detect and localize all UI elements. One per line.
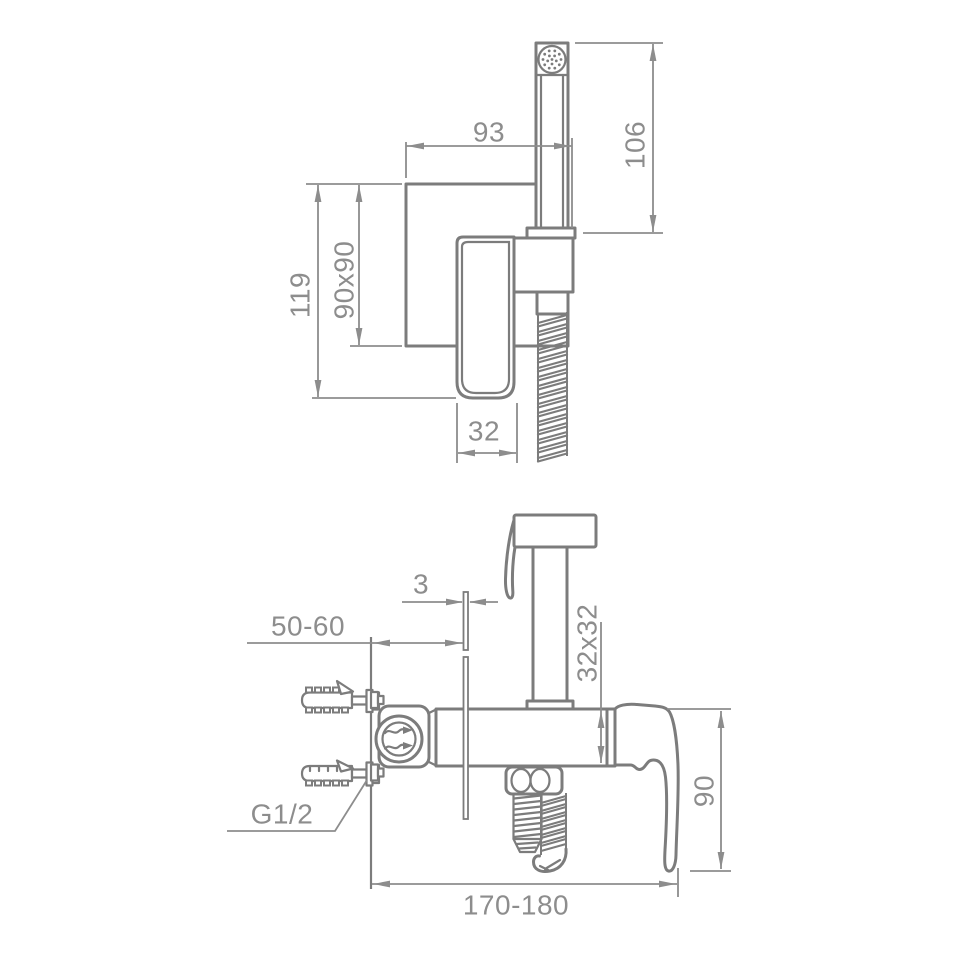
holder-flange [527,228,575,238]
dim-label-170-180: 170-180 [463,890,569,921]
handset-shaft-side [533,547,567,701]
handset-holder-block [514,238,573,292]
label-g12-thread: G1/2 [251,799,314,830]
lever-handle [615,704,678,871]
hose-sleeve [537,292,568,314]
dim-170-180: 170-180 [372,868,678,921]
dim-label-3: 3 [413,569,429,600]
dim-label-32: 32 [468,416,500,447]
dim-label-119: 119 [285,272,316,318]
dim-label-90: 90 [689,775,720,807]
spray-head-side [514,515,596,547]
escutcheon-plate [464,592,469,819]
dim-label-106: 106 [620,121,651,169]
dim-label-32x32: 32x32 [572,604,603,683]
technical-drawing-page: 93 106 119 [0,0,970,970]
dim-106: 106 [575,43,663,233]
shower-hose-side [534,793,567,872]
dim-label-90x90: 90x90 [329,241,360,320]
hose-nipple [514,795,542,852]
mixer-body [457,237,514,398]
side-view: 3 50-60 32x32 [227,515,731,921]
annotation-g12: G1/2 [227,780,367,831]
inlet-fitting-upper [371,692,384,708]
wall-anchor-lower [302,761,379,786]
inlet-fitting-lower [371,765,384,781]
mixing-cartridge [376,716,422,762]
dim-3: 3 [402,569,498,606]
dim-90x90: 90x90 [329,185,403,346]
dim-label-50-60: 50-60 [271,611,345,642]
front-view: 93 106 119 [285,43,664,463]
dim-label-93: 93 [473,117,505,148]
dim-50-60: 50-60 [247,611,463,647]
dim-32: 32 [457,403,517,463]
mixer-body-side [436,709,607,766]
bidet-shower-technical-drawing: 93 106 119 [0,0,970,970]
wall-anchor-upper [302,681,379,713]
handset-holder-side [527,701,573,709]
hose-outlet [506,767,562,794]
